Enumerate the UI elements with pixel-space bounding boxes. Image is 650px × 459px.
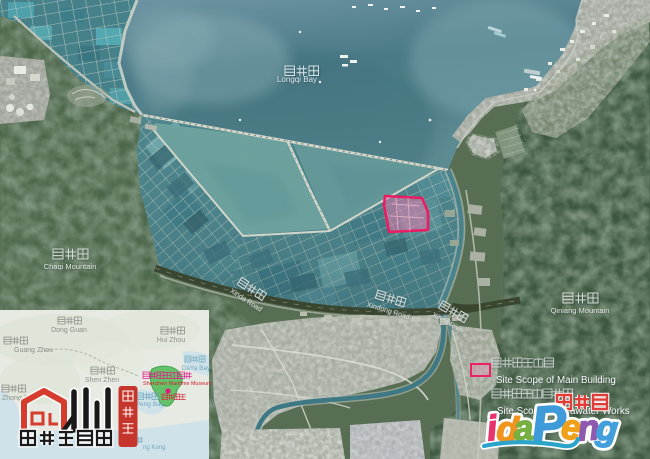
svg-text:ng Kong: ng Kong [143,445,165,451]
svg-text:Shen Zhen: Shen Zhen [85,377,119,384]
svg-text:Guang Zhou: Guang Zhou [14,347,53,354]
svg-text:Shenzhen Maritime Museum: Shenzhen Maritime Museum [143,381,212,387]
svg-text:g: g [593,408,619,449]
svg-text:Hui Zhou: Hui Zhou [157,337,186,344]
svg-text:DaYa Bay: DaYa Bay [182,365,212,372]
svg-text:Dong Guan: Dong Guan [51,327,87,334]
